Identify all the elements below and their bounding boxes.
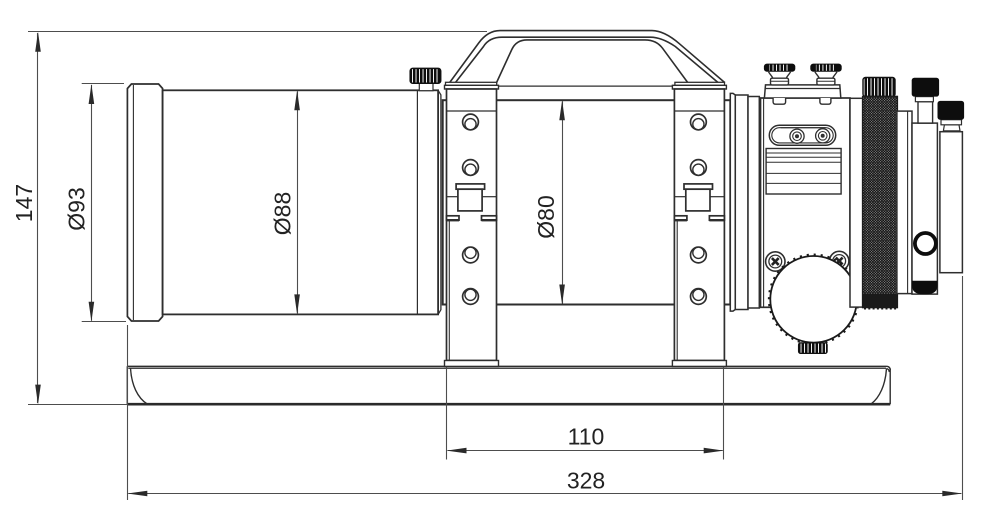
svg-text:328: 328 — [567, 468, 605, 494]
svg-text:Ø93: Ø93 — [64, 187, 90, 230]
svg-text:110: 110 — [568, 424, 605, 450]
svg-text:Ø80: Ø80 — [533, 195, 559, 238]
svg-text:147: 147 — [11, 184, 37, 222]
svg-text:Ø88: Ø88 — [270, 192, 296, 235]
